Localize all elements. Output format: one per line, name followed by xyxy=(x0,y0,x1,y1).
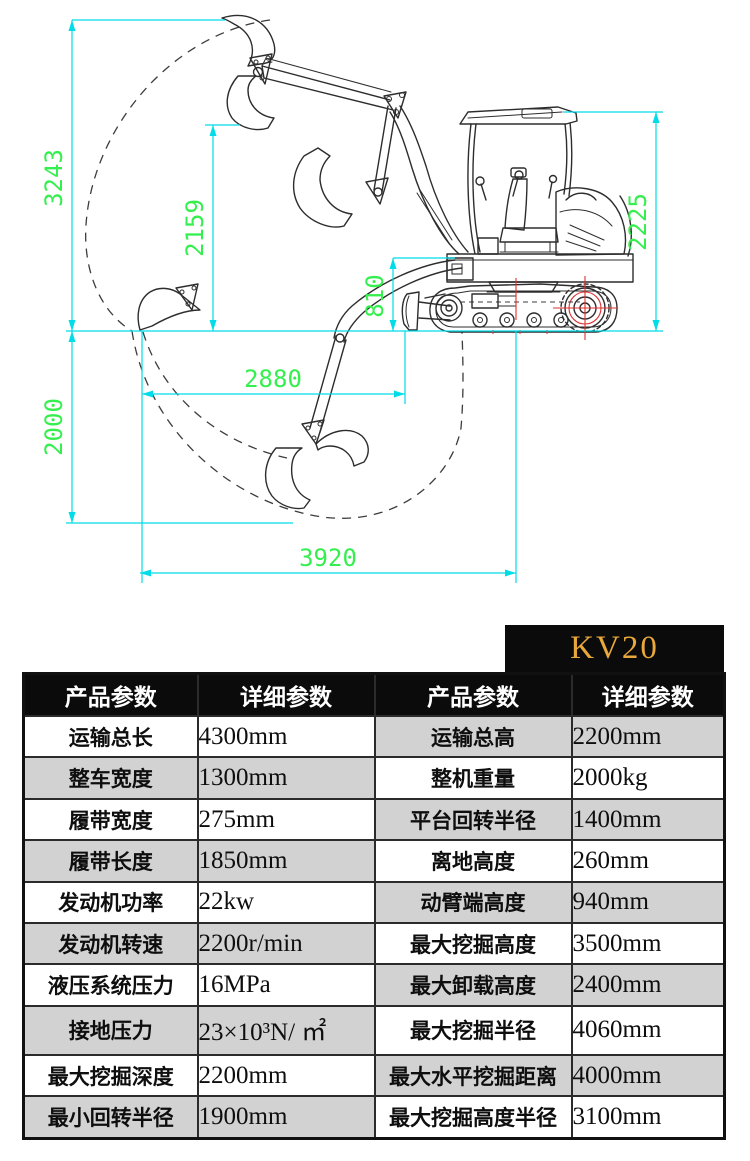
param-value-cell: 2400mm xyxy=(572,964,725,1005)
excavator-working-range-diagram: 3243 2000 2159 810 xyxy=(0,0,750,612)
boom-raised xyxy=(250,54,468,254)
spec-table-body: 运输总长4300mm运输总高2200mm整车宽度1300mm整机重量2000kg… xyxy=(24,716,725,1139)
param-label-cell: 平台回转半径 xyxy=(375,799,572,840)
spec-header-cell: 详细参数 xyxy=(198,674,375,717)
dim-label-810: 810 xyxy=(361,274,389,317)
param-value-cell: 4300mm xyxy=(198,716,375,757)
param-label-cell: 离地高度 xyxy=(375,840,572,881)
spec-row: 运输总长4300mm运输总高2200mm xyxy=(24,716,725,757)
spec-row: 接地压力23×10³N/ ㎡最大挖掘半径4060mm xyxy=(24,1006,725,1055)
param-label-cell: 最大挖掘深度 xyxy=(24,1055,198,1096)
param-value-cell: 1900mm xyxy=(198,1096,375,1138)
spec-row: 最小回转半径1900mm最大挖掘高度半径3100mm xyxy=(24,1096,725,1138)
dim-2225: 2225 xyxy=(563,112,663,331)
param-value-cell: 260mm xyxy=(572,840,725,881)
param-label-cell: 最大挖掘高度半径 xyxy=(375,1096,572,1138)
canopy xyxy=(460,107,577,254)
spec-row: 发动机功率22kw动臂端高度940mm xyxy=(24,882,725,923)
dim-label-2159: 2159 xyxy=(181,199,209,257)
param-value-cell: 23×10³N/ ㎡ xyxy=(198,1006,375,1055)
spec-header-cell: 产品参数 xyxy=(24,674,198,717)
param-value-cell: 2200mm xyxy=(198,1055,375,1096)
param-label-cell: 最大水平挖掘距离 xyxy=(375,1055,572,1096)
engine-cover xyxy=(556,188,631,256)
bucket-positions xyxy=(138,16,368,509)
spec-header-row: 产品参数详细参数产品参数详细参数 xyxy=(24,674,725,717)
param-label-cell: 整机重量 xyxy=(375,757,572,798)
param-value-cell: 1850mm xyxy=(198,840,375,881)
param-label-cell: 最大卸载高度 xyxy=(375,964,572,1005)
spec-row: 最大挖掘深度2200mm最大水平挖掘距离4000mm xyxy=(24,1055,725,1096)
model-badge-text: KV20 xyxy=(570,630,659,667)
param-value-cell: 4060mm xyxy=(572,1006,725,1055)
param-value-cell: 2000kg xyxy=(572,757,725,798)
spec-table-header: 产品参数详细参数产品参数详细参数 xyxy=(24,674,725,717)
param-value-cell: 275mm xyxy=(198,799,375,840)
param-label-cell: 液压系统压力 xyxy=(24,964,198,1005)
param-label-cell: 履带长度 xyxy=(24,840,198,881)
operator-area xyxy=(476,168,558,254)
dim-label-2880: 2880 xyxy=(244,365,302,393)
param-label-cell: 发动机功率 xyxy=(24,882,198,923)
dim-2159: 2159 xyxy=(181,125,240,331)
param-value-cell: 940mm xyxy=(572,882,725,923)
param-value-cell: 22kw xyxy=(198,882,375,923)
dim-label-3243: 3243 xyxy=(40,149,68,207)
spec-row: 整车宽度1300mm整机重量2000kg xyxy=(24,757,725,798)
param-value-cell: 1300mm xyxy=(198,757,375,798)
excavator-drawing xyxy=(138,16,633,509)
param-label-cell: 发动机转速 xyxy=(24,923,198,964)
spec-row: 发动机转速2200r/min最大挖掘高度3500mm xyxy=(24,923,725,964)
param-label-cell: 动臂端高度 xyxy=(375,882,572,923)
param-label-cell: 最大挖掘高度 xyxy=(375,923,572,964)
param-label-cell: 最大挖掘半径 xyxy=(375,1006,572,1055)
param-label-cell: 整车宽度 xyxy=(24,757,198,798)
param-value-cell: 16MPa xyxy=(198,964,375,1005)
param-label-cell: 最小回转半径 xyxy=(24,1096,198,1138)
model-badge: KV20 xyxy=(505,625,724,672)
spec-table: 产品参数详细参数产品参数详细参数 运输总长4300mm运输总高2200mm整车宽… xyxy=(22,672,726,1140)
dim-label-2000: 2000 xyxy=(40,398,68,456)
param-label-cell: 运输总高 xyxy=(375,716,572,757)
spec-header-cell: 详细参数 xyxy=(572,674,725,717)
track-rollers xyxy=(473,313,568,327)
param-value-cell: 2200mm xyxy=(572,716,725,757)
dim-2880: 2880 xyxy=(142,331,405,583)
param-label-cell: 履带宽度 xyxy=(24,799,198,840)
spec-header-cell: 产品参数 xyxy=(375,674,572,717)
param-label-cell: 运输总长 xyxy=(24,716,198,757)
param-value-cell: 1400mm xyxy=(572,799,725,840)
dim-3243-2000: 3243 2000 xyxy=(40,20,293,523)
spec-row: 液压系统压力16MPa最大卸载高度2400mm xyxy=(24,964,725,1005)
spec-row: 履带宽度275mm平台回转半径1400mm xyxy=(24,799,725,840)
param-value-cell: 2200r/min xyxy=(198,923,375,964)
param-value-cell: 3500mm xyxy=(572,923,725,964)
page: 3243 2000 2159 810 xyxy=(0,0,750,1161)
spec-row: 履带长度1850mm离地高度260mm xyxy=(24,840,725,881)
dim-3920: 3920 xyxy=(140,331,516,583)
dim-label-2225: 2225 xyxy=(624,193,652,251)
param-value-cell: 3100mm xyxy=(572,1096,725,1138)
dim-label-3920: 3920 xyxy=(299,544,357,572)
param-value-cell: 4000mm xyxy=(572,1055,725,1096)
param-label-cell: 接地压力 xyxy=(24,1006,198,1055)
